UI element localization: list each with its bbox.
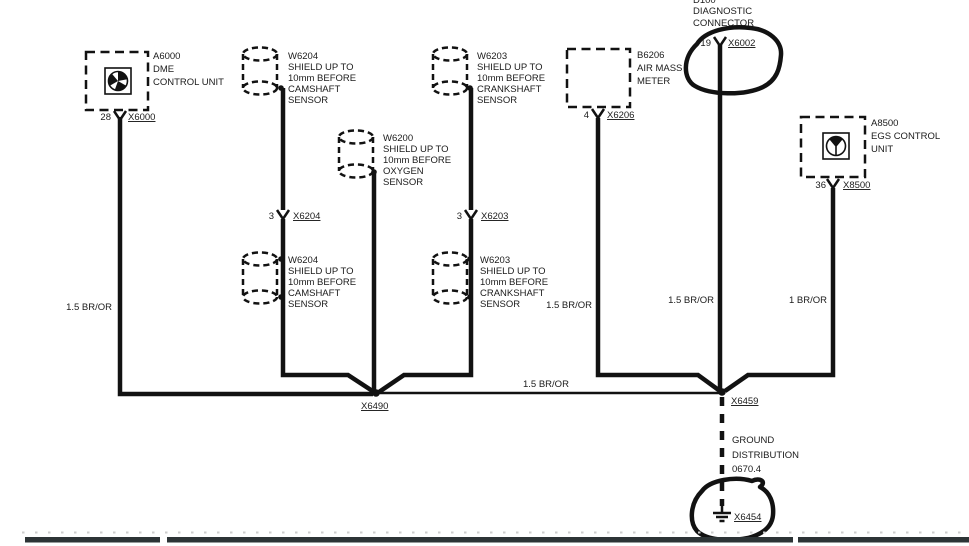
egs-id-label: A8500 [871, 118, 898, 129]
shield-oxygen-l2: 10mm BEFORE [383, 155, 451, 166]
shield-crankshaft-top-l1: SHIELD UP TO [477, 62, 542, 73]
shield-camshaft-top-l2: 10mm BEFORE [288, 73, 356, 84]
x6203-connector-label: X6203 [481, 211, 508, 222]
wiring-diagram-page: X6490 X6459 1.5 BR/OR A6000 DME CONTROL … [0, 0, 969, 546]
dme-pin-number: 28 [100, 112, 111, 123]
air-mass-meter-wire-gauge-label: 1.5 BR/OR [546, 300, 592, 311]
diagnostic-wire-gauge-label: 1.5 BR/OR [668, 295, 714, 306]
shield-camshaft-bottom-id: W6204 [288, 255, 318, 266]
shield-oxygen-tap-dot [371, 169, 377, 175]
shield-camshaft-bottom-l1: SHIELD UP TO [288, 266, 353, 277]
shield-camshaft-bottom-tap-dot-bottom [278, 294, 284, 300]
egs-name-line2: UNIT [871, 144, 893, 155]
dme-wire-gauge-label: 1.5 BR/OR [66, 302, 112, 313]
shield-crankshaft-bottom-l3: CRANKSHAFT [480, 288, 545, 299]
shield-camshaft-bottom-l4: SENSOR [288, 299, 328, 310]
x6203-pin-number: 3 [457, 211, 462, 222]
shield-camshaft-top-l4: SENSOR [288, 95, 328, 106]
shield-crankshaft-bottom-l1: SHIELD UP TO [480, 266, 545, 277]
shield-camshaft-top-l3: CAMSHAFT [288, 84, 340, 95]
shield-crankshaft-bottom-tap-dot-bottom [467, 294, 473, 300]
bus-wire-gauge-label: 1.5 BR/OR [523, 379, 569, 390]
shield-crankshaft-top-l4: SENSOR [477, 95, 517, 106]
bottom-bar-segment-1 [25, 537, 160, 543]
air-mass-meter-id-label: B6206 [637, 50, 664, 61]
dme-name-line1: DME [153, 64, 174, 75]
x6204-pin-number: 3 [269, 211, 274, 222]
air-mass-meter-pin-number: 4 [584, 110, 589, 121]
shield-oxygen-id: W6200 [383, 133, 413, 144]
bottom-bar-segment-3 [798, 537, 969, 543]
wiring-diagram: X6490 X6459 1.5 BR/OR A6000 DME CONTROL … [0, 0, 969, 546]
shield-crankshaft-bottom-l2: 10mm BEFORE [480, 277, 548, 288]
shield-crankshaft-top-tap-dot [467, 85, 473, 91]
diagnostic-name-line1: DIAGNOSTIC [693, 6, 752, 17]
junction-x6459-dot [718, 388, 726, 396]
dme-name-line2: CONTROL UNIT [153, 77, 224, 88]
shield-crankshaft-top-l3: CRANKSHAFT [477, 84, 542, 95]
junction-x6459-label: X6459 [731, 396, 758, 407]
ground-label-line2: DISTRIBUTION [732, 450, 799, 461]
ground-label-line1: GROUND [732, 435, 774, 446]
x6204-connector-label: X6204 [293, 211, 320, 222]
shield-crankshaft-top-l2: 10mm BEFORE [477, 73, 545, 84]
shield-oxygen-l1: SHIELD UP TO [383, 144, 448, 155]
diagnostic-connector-label: X6002 [728, 38, 755, 49]
air-mass-meter-name-line1: AIR MASS [637, 63, 682, 74]
dme-connector-label: X6000 [128, 112, 155, 123]
bottom-bar-segment-2 [167, 537, 793, 543]
dme-id-label: A6000 [153, 51, 180, 62]
shield-crankshaft-bottom-l4: SENSOR [480, 299, 520, 310]
egs-connector-label: X8500 [843, 180, 870, 191]
shield-crankshaft-bottom-tap-dot-top [467, 256, 473, 262]
air-mass-meter-name-line2: METER [637, 76, 670, 87]
shield-camshaft-bottom-l3: CAMSHAFT [288, 288, 340, 299]
junction-x6490-dot [372, 389, 380, 397]
ground-label-line3: 0670.4 [732, 464, 761, 475]
shield-camshaft-bottom-tap-dot-top [278, 256, 284, 262]
egs-pin-number: 36 [815, 180, 826, 191]
ground-connector-label: X6454 [734, 512, 761, 523]
junction-x6490-label: X6490 [361, 401, 388, 412]
shield-camshaft-top-tap-dot [278, 85, 284, 91]
shield-camshaft-top-l1: SHIELD UP TO [288, 62, 353, 73]
shield-camshaft-bottom-l2: 10mm BEFORE [288, 277, 356, 288]
egs-wire-gauge-label: 1 BR/OR [789, 295, 827, 306]
shield-oxygen-l4: SENSOR [383, 177, 423, 188]
egs-name-line1: EGS CONTROL [871, 131, 940, 142]
air-mass-meter-connector-label: X6206 [607, 110, 634, 121]
shield-crankshaft-bottom-id: W6203 [480, 255, 510, 266]
shield-crankshaft-top-id: W6203 [477, 51, 507, 62]
diagnostic-pin-number: 19 [700, 38, 711, 49]
shield-oxygen-l3: OXYGEN [383, 166, 424, 177]
shield-camshaft-top-id: W6204 [288, 51, 318, 62]
